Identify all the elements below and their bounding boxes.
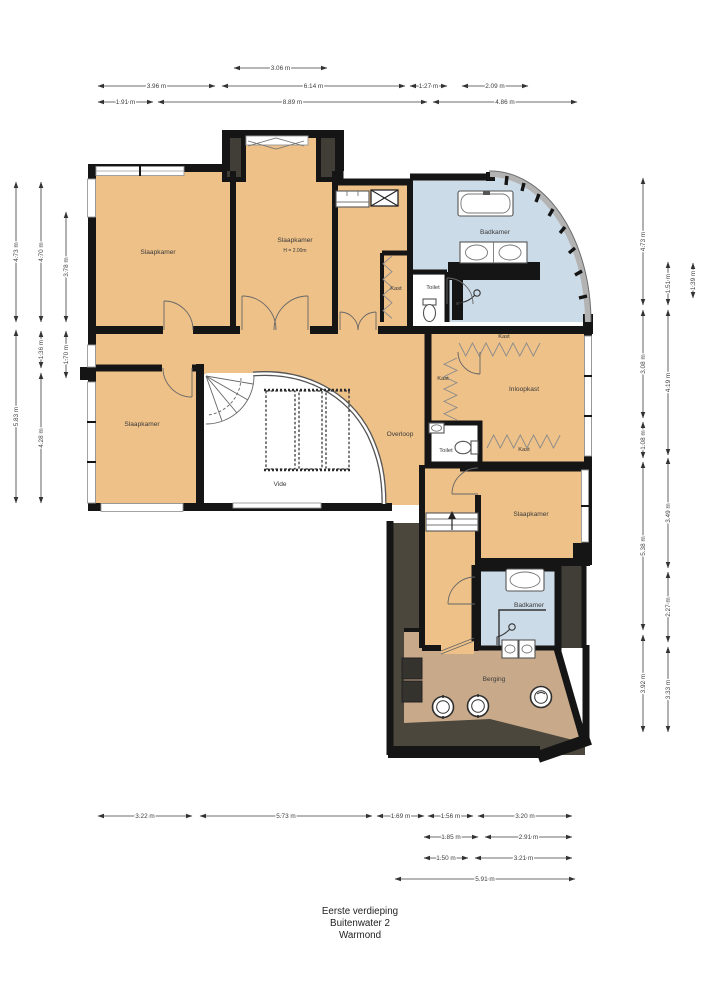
dimension-label: 4.73 m: [13, 242, 20, 262]
dimension-label: 1.51 m: [665, 274, 672, 294]
dimension-label: 6.14 m: [304, 83, 324, 90]
room-label-badkamer-bottom: Badkamer: [514, 602, 545, 609]
double-washbasin-top: [460, 242, 527, 263]
bathtub-top: [458, 191, 513, 216]
dimension-label: 3.49 m: [665, 503, 672, 523]
dimension-label: 4.73 m: [640, 232, 647, 252]
dimension: 3.21 m: [475, 855, 572, 862]
plan-title-line3: Warmond: [339, 930, 381, 941]
dimension-label: 3.22 m: [135, 813, 155, 820]
room-fills-layer: [92, 136, 588, 755]
dimension-label: 2.27 m: [665, 597, 672, 617]
dimension-label: 1.08 m: [640, 430, 647, 450]
dimension: 4.73 m: [640, 178, 647, 305]
dimension: 5.91 m: [395, 876, 575, 883]
toilet-mid-fixture: [455, 441, 478, 454]
room-label-berging: Berging: [483, 676, 506, 683]
floorplan-svg: Slaapkamer Slaapkamer H = 2.00m Badkamer…: [0, 0, 707, 1000]
dimension-label: 3.78 m: [63, 257, 70, 277]
dimension: 3.96 m: [98, 83, 215, 90]
bathtub-bottom: [506, 569, 544, 591]
dimension: 5.38 m: [640, 462, 647, 630]
dimension-label: 1.27 m: [419, 83, 439, 90]
dimension-label: 3.33 m: [665, 680, 672, 700]
dimension-label: 4.19 m: [665, 373, 672, 393]
dimension: 6.14 m: [222, 83, 405, 90]
x-box-fixture: [371, 190, 398, 206]
dimension: 1.51 m: [665, 262, 672, 305]
dimension-label: 1.36 m: [38, 340, 45, 360]
dimensions-left: 4.73 m5.83 m4.70 m1.36 m4.28 m3.78 m1.70…: [13, 182, 70, 503]
dimension: 1.70 m: [63, 331, 70, 378]
dimension: 3.33 m: [665, 647, 672, 732]
dimension-label: 5.73 m: [276, 813, 296, 820]
dimension-label: 4.86 m: [495, 99, 515, 106]
dimension: 3.78 m: [63, 212, 70, 322]
dimension-label: 1.69 m: [391, 813, 411, 820]
berging-sinks: [502, 640, 535, 658]
room-label-toilet-top: Toilet: [426, 285, 440, 291]
dimension: 3.92 m: [640, 635, 647, 732]
dimension: 3.22 m: [98, 813, 192, 820]
dimension: 4.28 m: [38, 373, 45, 503]
dimension: 1.08 m: [640, 422, 647, 458]
room-label-badkamer-top: Badkamer: [480, 229, 511, 236]
dimension-label: 1.50 m: [436, 855, 456, 862]
dimension-label: 2.91 m: [519, 834, 539, 841]
dimension: 4.86 m: [433, 99, 577, 106]
dimension-label: 3.06 m: [271, 65, 291, 72]
room-label-slaapkamer-tm-height: H = 2.00m: [283, 248, 306, 254]
room-label-kast-left: Kast: [437, 376, 449, 382]
dimension: 3.49 m: [665, 458, 672, 568]
dimension: 1.56 m: [428, 813, 473, 820]
plan-title-line1: Eerste verdieping: [322, 906, 398, 917]
dimension-label: 1.70 m: [63, 345, 70, 365]
dimension: 2.09 m: [462, 83, 528, 90]
dimension-label: 2.09 m: [485, 83, 505, 90]
room-label-kast-top: Kast: [498, 334, 510, 340]
room-label-kast-hal: Kast: [390, 286, 402, 292]
dimension-label: 1.39 m: [690, 271, 697, 291]
dimensions-bottom: 3.22 m5.73 m1.69 m1.56 m3.20 m1.85 m2.91…: [98, 813, 575, 883]
dimension-label: 3.96 m: [147, 83, 167, 90]
dimensions-top: 3.06 m3.96 m6.14 m1.27 m2.09 m1.91 m8.89…: [98, 65, 577, 106]
dimension: 5.83 m: [13, 330, 20, 503]
dimension-label: 5.38 m: [640, 536, 647, 556]
berging-appliance: [402, 681, 422, 702]
dimension-label: 4.28 m: [38, 428, 45, 448]
dimension: 1.85 m: [424, 834, 478, 841]
room-label-inloopkast: Inloopkast: [509, 386, 539, 393]
dimension: 1.91 m: [98, 99, 153, 106]
toilet-top-fixture: [423, 299, 436, 322]
room-label-vide: Vide: [273, 481, 286, 488]
room-label-slaapkamer-left: Slaapkamer: [124, 421, 160, 428]
dimension-label: 3.21 m: [514, 855, 534, 862]
dimensions-right: 4.73 m3.08 m1.08 m5.38 m3.92 m1.51 m4.19…: [640, 178, 697, 732]
dimension-label: 1.91 m: [116, 99, 136, 106]
dimension: 3.06 m: [234, 65, 327, 72]
dimension: 3.08 m: [640, 310, 647, 418]
dimension: 4.19 m: [665, 310, 672, 455]
dimension: 4.73 m: [13, 182, 20, 322]
berging-appliance: [402, 658, 422, 679]
room-label-slaapkamer-tm: Slaapkamer: [277, 237, 313, 244]
room-label-kast-bottom: Kast: [518, 447, 530, 453]
dimension-label: 1.85 m: [441, 834, 461, 841]
dimension: 1.39 m: [690, 263, 697, 298]
dimension-label: 8.89 m: [283, 99, 303, 106]
dimension-label: 1.56 m: [441, 813, 461, 820]
dimension-label: 4.70 m: [38, 242, 45, 262]
dimension-label: 5.91 m: [475, 876, 495, 883]
plan-title: Eerste verdieping Buitenwater 2 Warmond: [322, 906, 398, 941]
dimension: 1.36 m: [38, 331, 45, 368]
room-label-slaapkamer-tl: Slaapkamer: [140, 249, 176, 256]
dimension: 3.20 m: [478, 813, 572, 820]
corridor-steps: [426, 511, 478, 531]
dimension-label: 3.20 m: [515, 813, 535, 820]
plan-title-line2: Buitenwater 2: [330, 918, 390, 929]
dimension: 8.89 m: [158, 99, 427, 106]
floorplan-page: Slaapkamer Slaapkamer H = 2.00m Badkamer…: [0, 0, 707, 1000]
dimension: 1.50 m: [424, 855, 468, 862]
dimension-label: 5.83 m: [13, 407, 20, 427]
dimension-label: 3.92 m: [640, 674, 647, 694]
hall-cabinet: [336, 191, 369, 207]
dimension: 2.27 m: [665, 572, 672, 642]
room-label-slaapkamer-br: Slaapkamer: [513, 511, 549, 518]
dimension: 4.70 m: [38, 182, 45, 322]
dimension: 5.73 m: [200, 813, 372, 820]
dimension: 1.27 m: [410, 83, 447, 90]
toilet-mid-sink: [429, 423, 444, 433]
room-label-toilet-mid: Toilet: [439, 448, 453, 454]
dimension-label: 3.08 m: [640, 354, 647, 374]
dimension: 1.69 m: [377, 813, 424, 820]
dimension: 2.91 m: [485, 834, 572, 841]
room-label-overloop: Overloop: [387, 431, 414, 438]
